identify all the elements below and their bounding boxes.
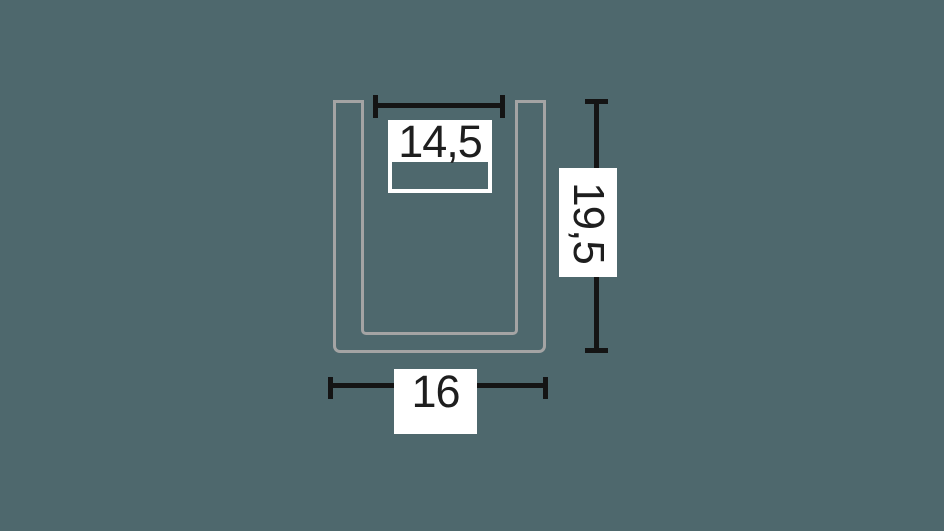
dimension-line: [375, 103, 503, 108]
diagram-canvas: 14,5 19,5 16: [0, 0, 944, 531]
inner-width-reference-box: 14,5: [388, 120, 492, 193]
outer-width-value: 16: [411, 369, 459, 414]
profile-right-leg-cap: [515, 100, 546, 103]
outer-width-label: 16: [394, 369, 477, 434]
dimension-tick-right: [500, 95, 505, 118]
inner-width-value: 14,5: [398, 119, 482, 164]
dimension-tick-left: [373, 95, 378, 118]
dimension-tick-bottom: [585, 348, 608, 353]
height-label: 19,5: [559, 168, 617, 277]
inner-width-label: 14,5: [388, 120, 492, 162]
dimension-tick-left: [328, 377, 333, 399]
dimension-tick-top: [585, 99, 608, 104]
profile-left-leg-cap: [333, 100, 364, 103]
dimension-tick-right: [543, 377, 548, 399]
height-value: 19,5: [566, 182, 610, 264]
